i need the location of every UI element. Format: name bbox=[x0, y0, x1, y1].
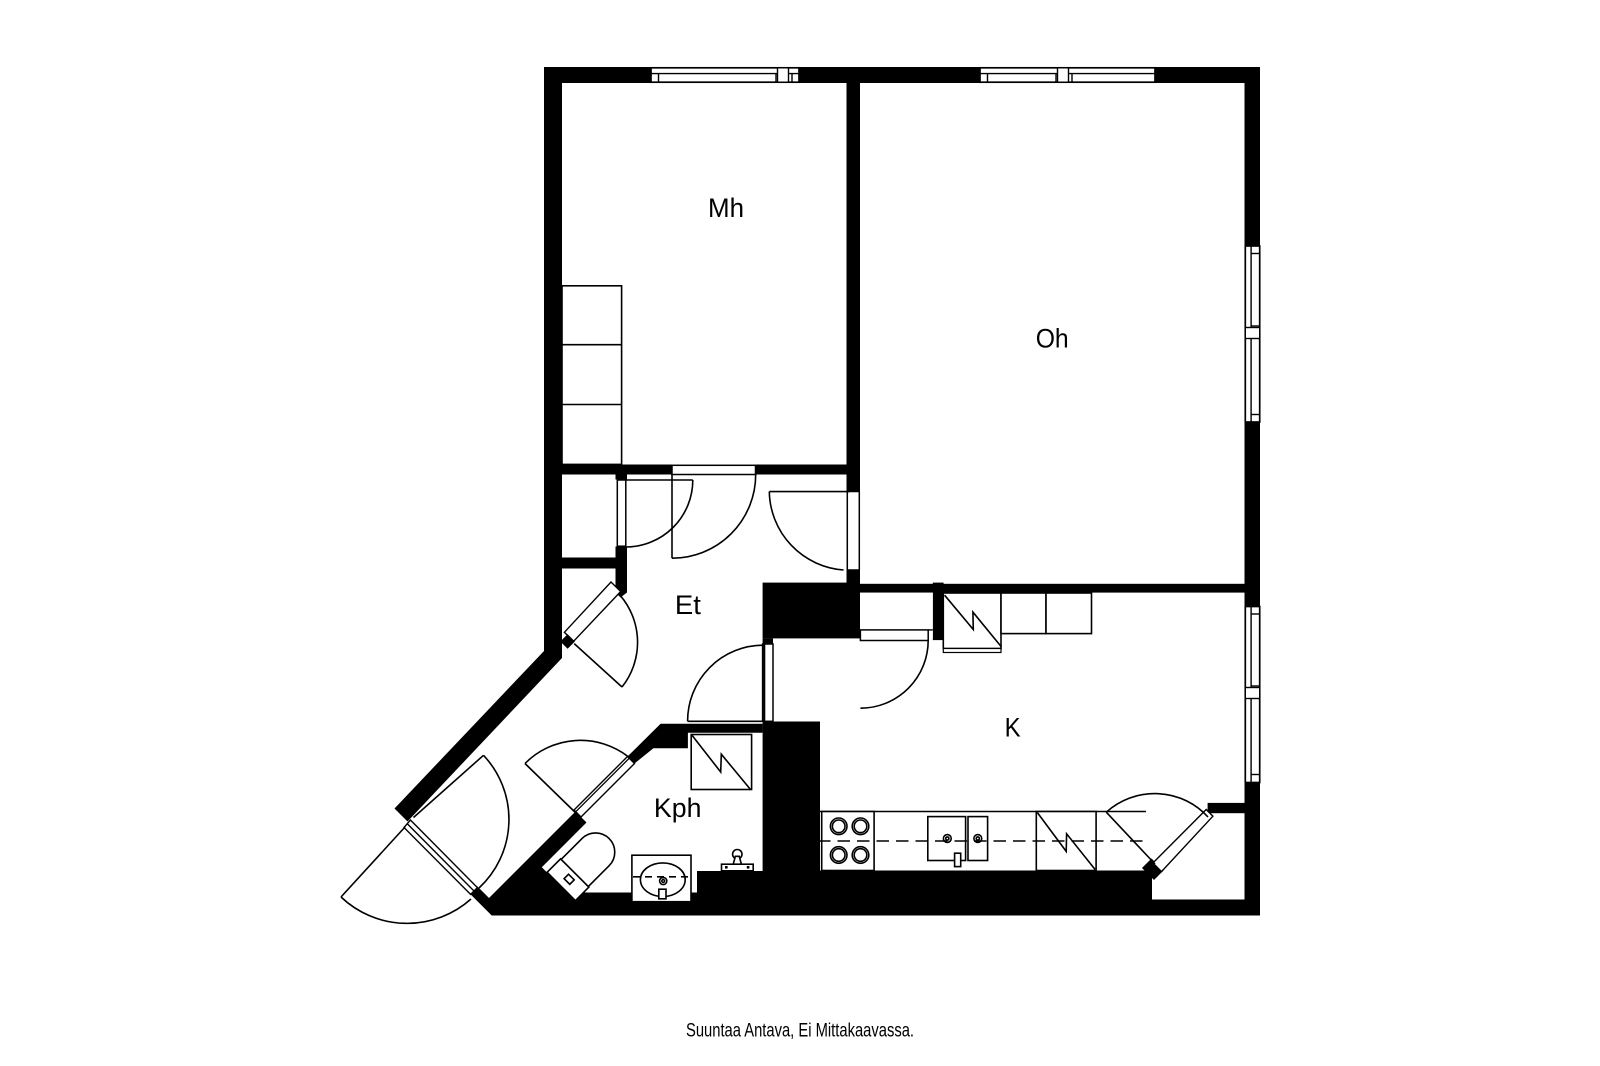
svg-text:Et: Et bbox=[675, 590, 702, 620]
svg-text:Suuntaa Antava, Ei Mittakaavas: Suuntaa Antava, Ei Mittakaavassa. bbox=[686, 1020, 914, 1041]
svg-text:Mh: Mh bbox=[708, 193, 744, 223]
svg-text:K: K bbox=[1005, 713, 1021, 743]
svg-text:Kph: Kph bbox=[654, 793, 702, 823]
svg-text:Oh: Oh bbox=[1036, 323, 1069, 353]
